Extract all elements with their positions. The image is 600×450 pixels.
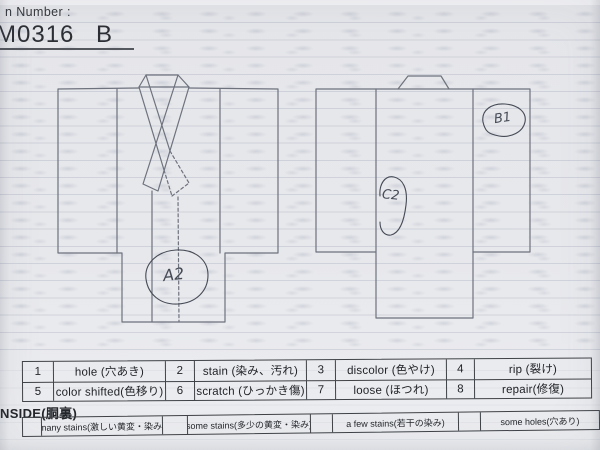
kimono-front-diagram — [58, 75, 278, 322]
defect-code: 3 — [306, 360, 335, 380]
defect-code: 4 — [446, 359, 474, 379]
front-collar-over-band — [143, 75, 189, 191]
defect-label: color shifted(色移り) — [53, 381, 165, 401]
c2-circle — [380, 177, 407, 235]
front-center-line-hidden — [178, 197, 179, 322]
defect-code: 1 — [23, 362, 53, 382]
defect-code-table: 1 hole (穴あき) 2 stain (染み、汚れ) 3 discolor … — [22, 358, 592, 402]
paper-top-edge — [0, 0, 600, 5]
annotation-b1: B1 — [493, 110, 512, 127]
kimono-inspection-sheet: n Number : M0316 B A2 B1 C2 1 — [0, 0, 600, 450]
inside-option-label: many stains(激しい黄変・染み) — [41, 416, 162, 435]
inside-condition-table: many stains(激しい黄変・染み) some stains(多少の黄変・… — [22, 410, 600, 437]
defect-label: scratch (ひっかき傷) — [194, 380, 306, 400]
defect-label: discolor (色やけ) — [335, 359, 446, 379]
mark-cell — [23, 418, 41, 436]
inside-option-label: some stains(多少の黄変・染み) — [187, 414, 310, 434]
back-sleeve-seams — [376, 89, 473, 252]
defect-label: stain (染み、汚れ) — [194, 360, 306, 380]
defect-code: 7 — [306, 380, 335, 400]
mark-cell — [458, 412, 480, 430]
annotation-c2: C2 — [381, 187, 400, 204]
defect-code: 5 — [23, 381, 53, 401]
annotation-a2: A2 — [162, 264, 185, 285]
inside-option-label: some holes(穴あり) — [480, 411, 599, 430]
front-body-outline — [58, 88, 278, 322]
defect-label: hole (穴あき) — [53, 361, 165, 381]
back-collar — [398, 76, 449, 89]
front-collar-under-band — [139, 75, 170, 170]
item-number-value: M0316 B — [0, 21, 113, 49]
defect-code: 6 — [165, 380, 194, 400]
item-number-label: n Number : — [5, 5, 71, 19]
mark-cell — [162, 416, 187, 434]
defect-label: repair(修復) — [474, 378, 591, 398]
inside-option-label: a few stains(若干の染み) — [332, 413, 458, 433]
defect-code: 8 — [446, 379, 474, 399]
front-collar-back — [139, 75, 189, 87]
item-number-underline — [0, 48, 134, 50]
annotation-circles — [146, 104, 525, 304]
front-collar-under-band-hidden — [164, 151, 189, 196]
defect-label: rip (裂け) — [474, 359, 591, 379]
mark-cell — [310, 414, 332, 432]
defect-code: 2 — [165, 361, 194, 381]
paper-showthrough-upper — [0, 6, 600, 354]
defect-label: loose (ほつれ) — [335, 379, 446, 399]
front-sleeve-seams — [117, 89, 220, 253]
